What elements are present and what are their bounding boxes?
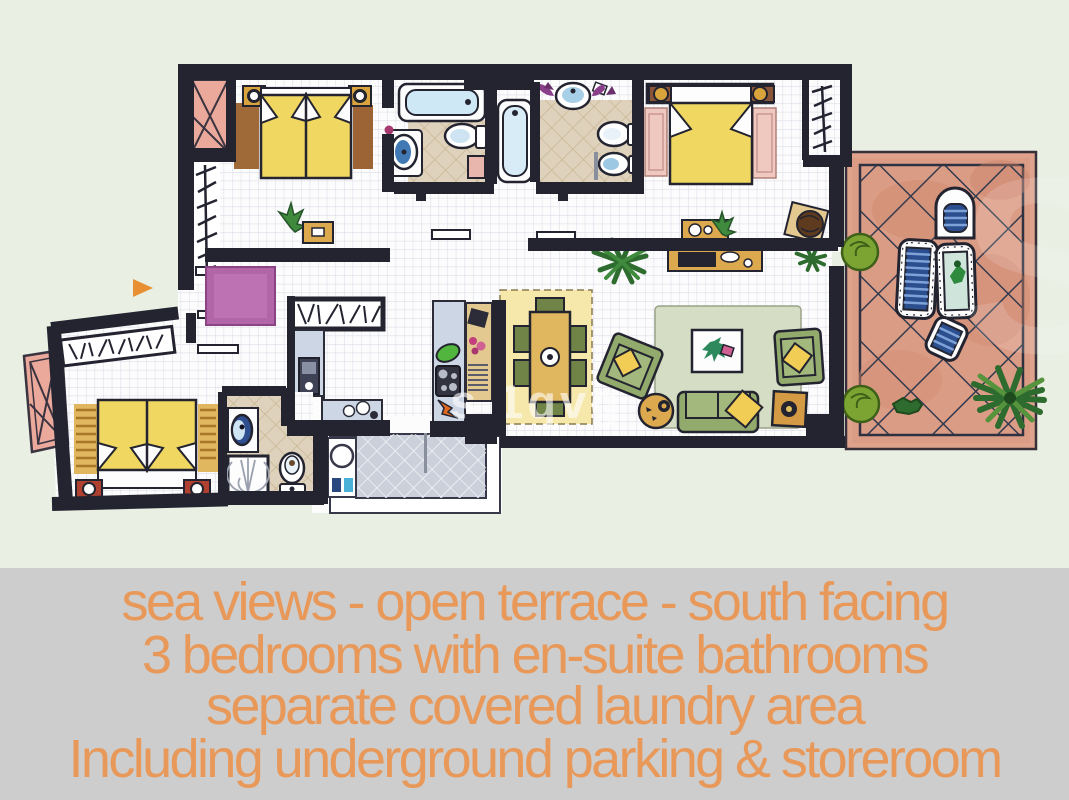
svg-text:S: S [960,126,1069,405]
